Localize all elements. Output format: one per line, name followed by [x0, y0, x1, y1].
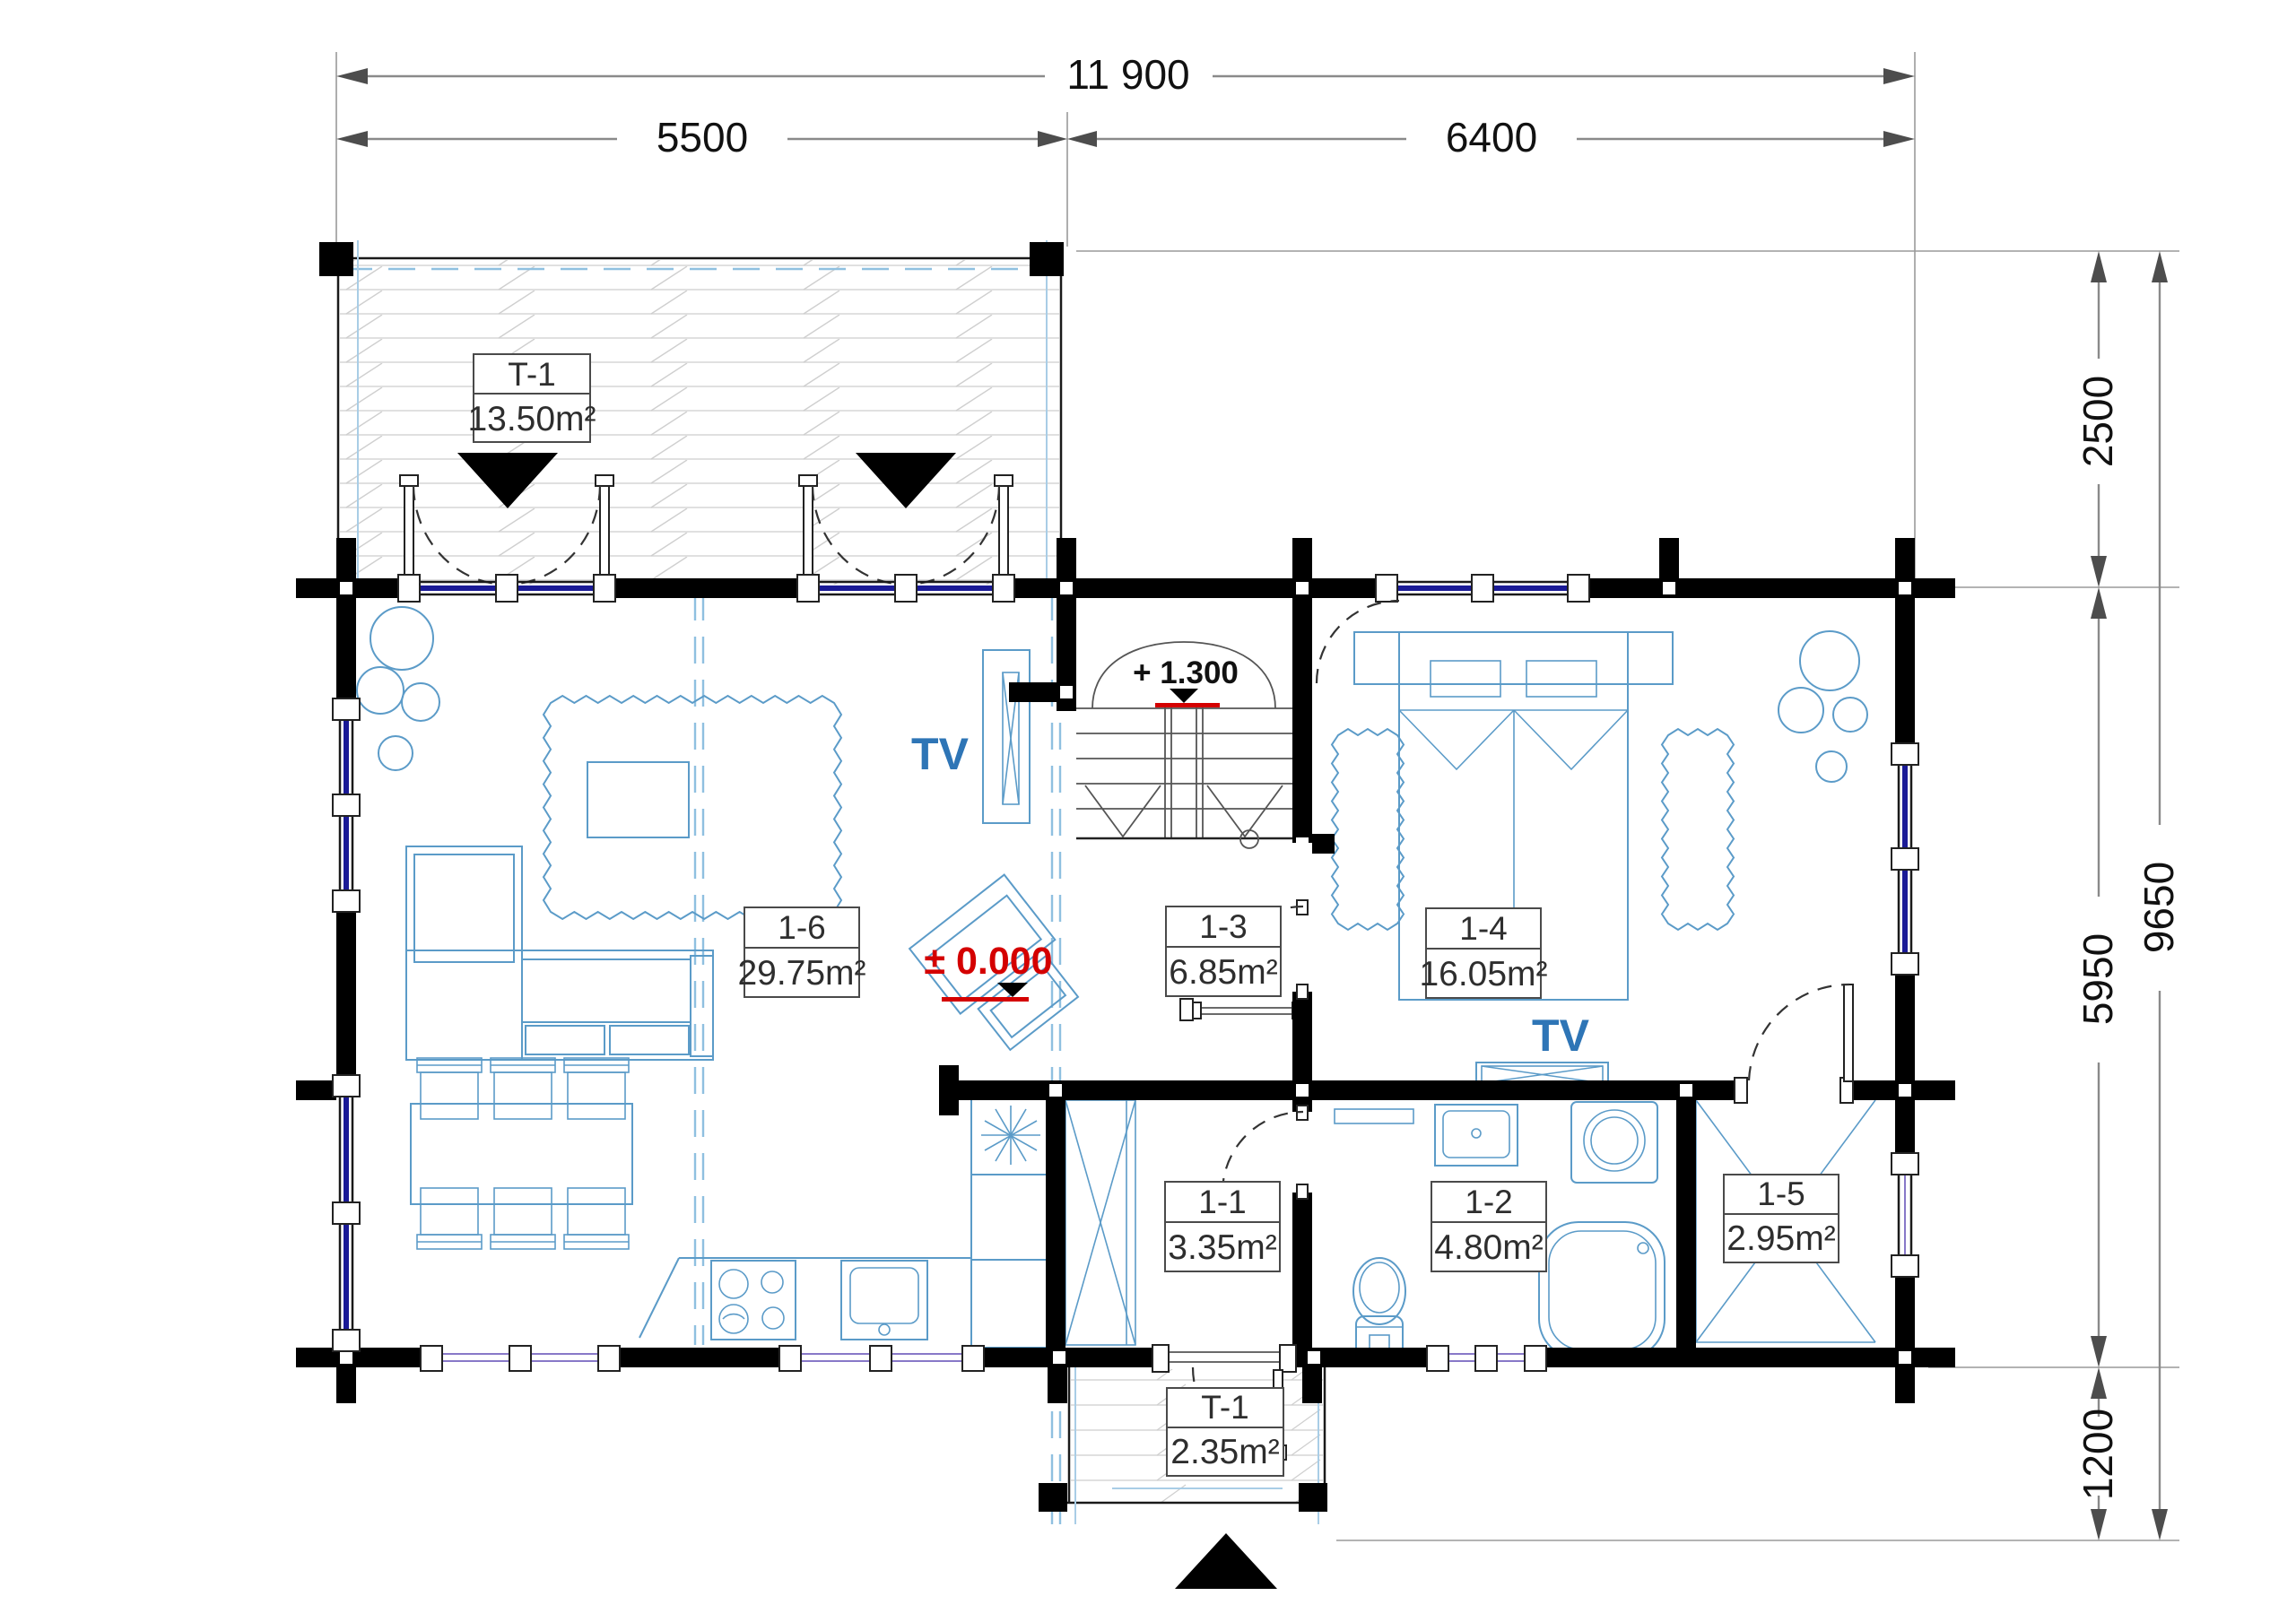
- room-label-terrace: T-1 13.50m²: [467, 354, 596, 442]
- fireplace-star-icon: [981, 1106, 1040, 1165]
- tv-label-living: TV: [911, 729, 970, 779]
- coffee-table: [587, 762, 689, 837]
- window-kitchen-bottom: [779, 1346, 984, 1371]
- window-dining-bottom: [421, 1346, 620, 1371]
- staircase: + 1.300: [1076, 642, 1292, 848]
- svg-text:29.75m²: 29.75m²: [737, 954, 865, 993]
- wall-stair-bedroom: [1292, 587, 1312, 843]
- dining-chairs-top: [417, 1058, 629, 1119]
- door-closet: [1735, 984, 1853, 1103]
- svg-text:3.35m²: 3.35m²: [1168, 1228, 1276, 1267]
- svg-text:1-5: 1-5: [1757, 1175, 1805, 1212]
- bedside-rug: [1332, 729, 1404, 930]
- floor-plan-canvas: 11 900 5500 6400 2500 5950 1200: [0, 0, 2296, 1622]
- hall-radiator: [1180, 999, 1303, 1020]
- washing-machine: [1571, 1102, 1657, 1183]
- tv-cabinet: [983, 650, 1030, 823]
- dim-porch-depth: 1200: [2074, 1409, 2121, 1500]
- stair-level-marker: + 1.300: [1133, 655, 1239, 707]
- toilet: [1353, 1258, 1405, 1359]
- dining-chairs-bottom: [417, 1188, 629, 1249]
- room-label-bathroom: 1-2 4.80m²: [1431, 1182, 1546, 1271]
- plant-icon: [370, 607, 433, 670]
- svg-text:6.85m²: 6.85m²: [1169, 953, 1277, 992]
- walls: [296, 538, 1955, 1403]
- doors: [1152, 601, 1853, 1460]
- sofa: [406, 846, 713, 1060]
- svg-text:2.35m²: 2.35m²: [1170, 1433, 1279, 1471]
- shelf: [1335, 1109, 1413, 1123]
- dim-right-span: 6400: [1446, 114, 1537, 160]
- svg-text:1-3: 1-3: [1199, 908, 1247, 945]
- svg-text:2.95m²: 2.95m²: [1726, 1219, 1835, 1258]
- dim-terrace-depth: 2500: [2074, 376, 2121, 467]
- terrace-post-right: [1030, 242, 1064, 276]
- room-label-hallway: 1-1 3.35m²: [1165, 1182, 1280, 1271]
- porch-post-left: [1039, 1483, 1067, 1512]
- bedside-rug: [1662, 729, 1734, 930]
- dim-house-depth: 5950: [2074, 933, 2121, 1025]
- room-label-porch: T-1 2.35m²: [1167, 1388, 1283, 1476]
- terrace-decking: [340, 260, 1059, 585]
- window-bedroom-top: [1376, 575, 1589, 602]
- svg-text:T-1: T-1: [1201, 1389, 1248, 1426]
- door-bedroom-upper: [1317, 601, 1399, 683]
- dimension-right: 2500 5950 1200 9650: [1076, 251, 2182, 1540]
- room-label-bedroom: 1-4 16.05m²: [1419, 908, 1547, 998]
- svg-text:1-6: 1-6: [778, 909, 825, 946]
- room-label-living: 1-6 29.75m²: [737, 907, 865, 997]
- stove: [711, 1261, 796, 1340]
- room-label-hall: 1-3 6.85m²: [1166, 906, 1281, 996]
- bedroom-furniture: [1332, 631, 1867, 1087]
- kitchen-sink: [841, 1261, 927, 1340]
- shower: [1539, 1222, 1665, 1358]
- tv-label-bedroom: TV: [1532, 1010, 1590, 1061]
- svg-text:4.80m²: 4.80m²: [1434, 1228, 1543, 1267]
- window-living-left: [333, 698, 360, 912]
- roof-guides: [695, 594, 1060, 1538]
- dim-total-depth: 9650: [2135, 862, 2182, 953]
- window-dining-left: [333, 1075, 360, 1351]
- dim-total-width: 11 900: [1066, 51, 1189, 98]
- svg-text:16.05m²: 16.05m²: [1419, 955, 1547, 993]
- porch-post-right: [1299, 1483, 1327, 1512]
- svg-text:1-1: 1-1: [1198, 1184, 1246, 1220]
- terrace-post-left: [319, 242, 353, 276]
- svg-text:T-1: T-1: [508, 356, 555, 393]
- entrance-arrow-icon: [1175, 1533, 1277, 1589]
- svg-text:13.50m²: 13.50m²: [467, 400, 596, 438]
- svg-text:1-4: 1-4: [1459, 910, 1507, 947]
- kitchen: [639, 1097, 1049, 1348]
- svg-text:1-2: 1-2: [1465, 1184, 1512, 1220]
- dining-set: [411, 1058, 632, 1249]
- washbasin: [1435, 1105, 1518, 1166]
- dim-left-span: 5500: [657, 114, 748, 160]
- level-upper: + 1.300: [1133, 655, 1239, 690]
- terrace: [319, 240, 1064, 586]
- window-bathroom-bottom: [1427, 1346, 1546, 1371]
- room-label-closet: 1-5 2.95m²: [1724, 1175, 1839, 1262]
- window-bedroom-right: [1892, 743, 1918, 975]
- plant-icon: [1800, 631, 1859, 690]
- window-closet-right: [1892, 1153, 1918, 1277]
- level-ground: ± 0.000: [924, 940, 1052, 983]
- hall-closet: [1065, 1100, 1135, 1345]
